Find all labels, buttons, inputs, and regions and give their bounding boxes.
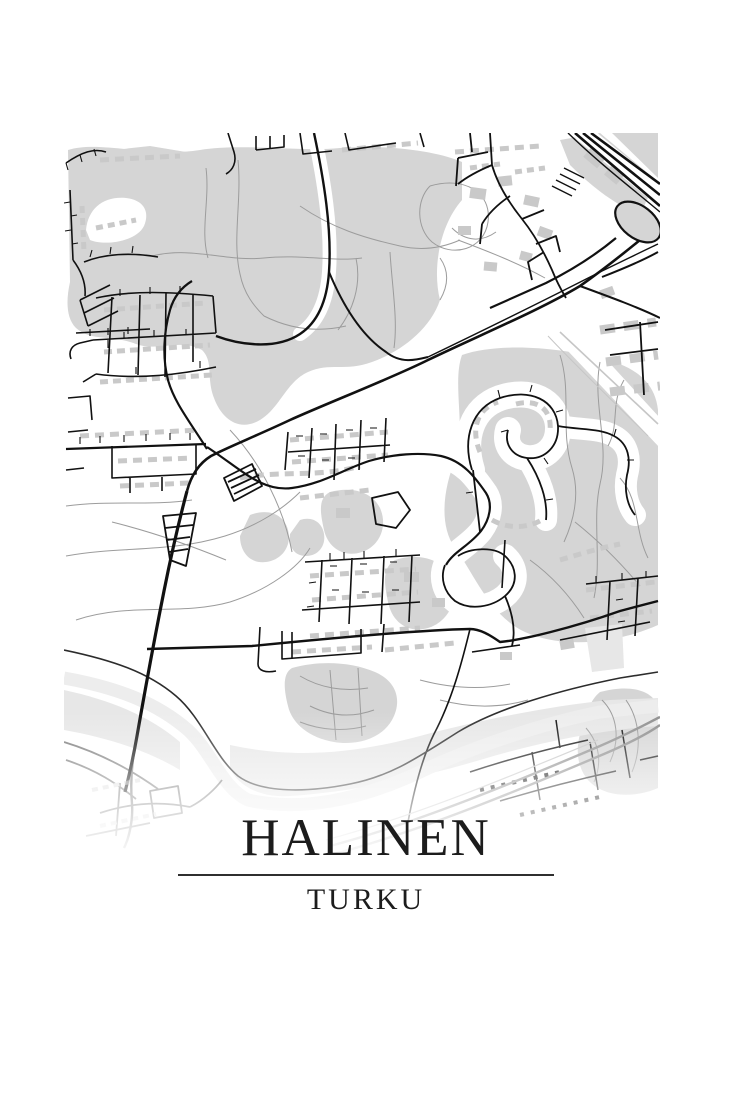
poster-title: HALINEN [0, 812, 732, 865]
park-area [68, 147, 462, 425]
map-graphic [0, 0, 732, 1094]
title-divider [178, 874, 554, 876]
allotment-stripes [224, 464, 262, 501]
poster-subtitle: TURKU [0, 885, 732, 915]
map-poster: HALINEN TURKU [0, 0, 732, 1094]
title-block: HALINEN TURKU [0, 812, 732, 915]
